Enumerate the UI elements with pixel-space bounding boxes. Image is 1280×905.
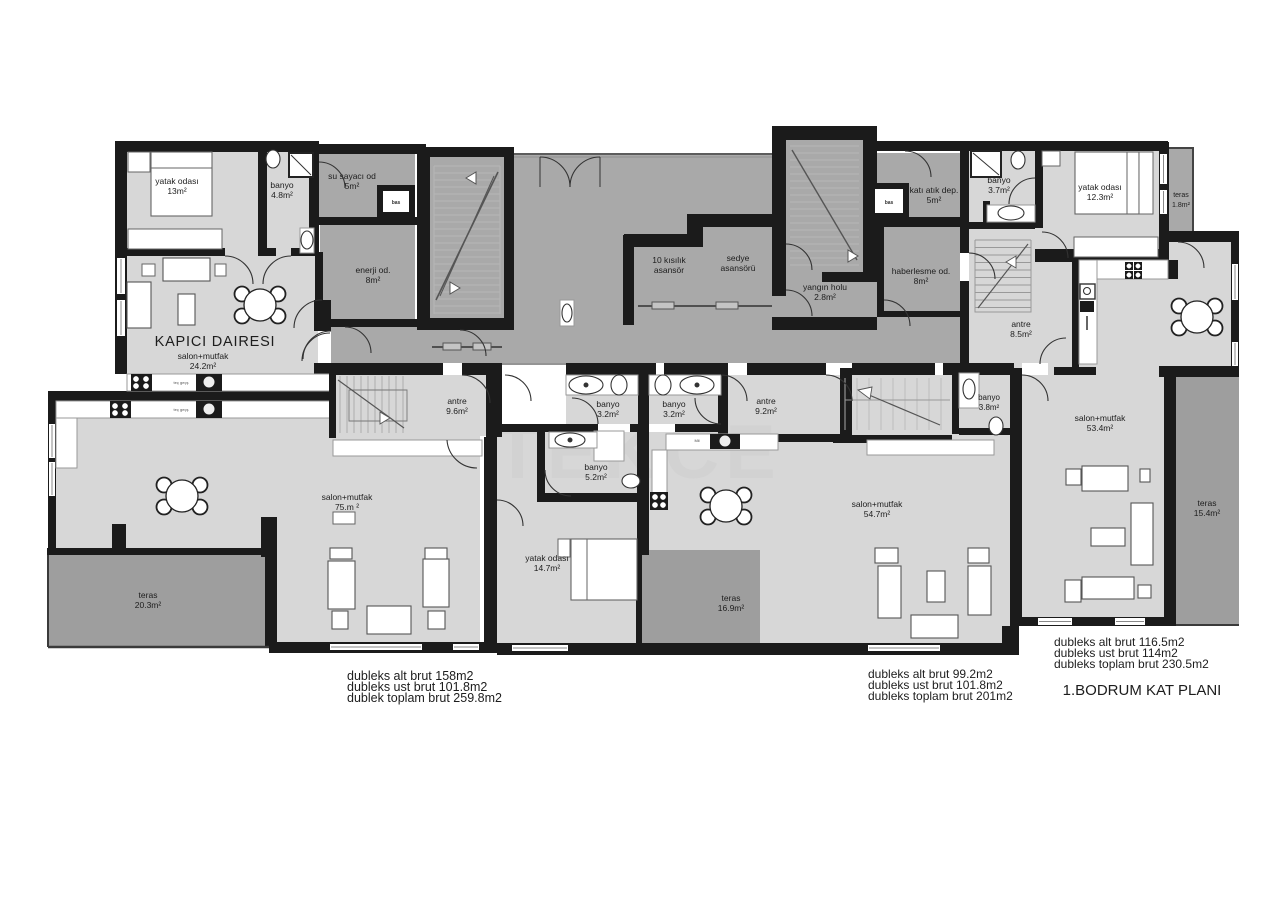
- svg-text:8.5m²: 8.5m²: [1010, 329, 1032, 339]
- svg-text:bas: bas: [885, 200, 894, 206]
- svg-text:banyo: banyo: [662, 399, 685, 409]
- svg-text:9.2m²: 9.2m²: [755, 406, 777, 416]
- svg-text:75.m ²: 75.m ²: [335, 502, 359, 512]
- svg-text:8m²: 8m²: [366, 275, 381, 285]
- svg-text:3.2m²: 3.2m²: [663, 409, 685, 419]
- svg-text:banyo: banyo: [596, 399, 619, 409]
- svg-text:KAPICI DAIRESI: KAPICI DAIRESI: [155, 334, 276, 350]
- svg-text:24.2m²: 24.2m²: [190, 361, 217, 371]
- svg-text:dubleks toplam brut 201m2: dubleks toplam brut 201m2: [868, 689, 1013, 703]
- svg-text:yangın holu: yangın holu: [803, 282, 847, 292]
- svg-text:yatak odası: yatak odası: [155, 176, 198, 186]
- svg-text:teç geçş: teç geçş: [174, 380, 189, 385]
- svg-text:8m²: 8m²: [914, 276, 929, 286]
- svg-text:15.4m²: 15.4m²: [1194, 508, 1221, 518]
- svg-text:su sayacı od: su sayacı od: [328, 171, 376, 181]
- svg-text:3.8m²: 3.8m²: [979, 403, 1000, 412]
- svg-text:salon+mutfak: salon+mutfak: [852, 499, 904, 509]
- svg-text:14.7m²: 14.7m²: [534, 563, 561, 573]
- svg-text:bas: bas: [392, 200, 401, 206]
- svg-text:2.8m²: 2.8m²: [814, 292, 836, 302]
- svg-text:16.9m²: 16.9m²: [718, 603, 745, 613]
- svg-text:teras: teras: [722, 593, 741, 603]
- svg-text:teras: teras: [139, 590, 158, 600]
- svg-text:antre: antre: [447, 396, 467, 406]
- svg-text:asansörü: asansörü: [721, 263, 756, 273]
- svg-text:teç geçş: teç geçş: [174, 407, 189, 412]
- svg-text:banyo: banyo: [270, 180, 293, 190]
- svg-text:salon+mutfak: salon+mutfak: [1075, 413, 1127, 423]
- svg-text:asansör: asansör: [654, 265, 684, 275]
- svg-text:sedye: sedye: [727, 253, 750, 263]
- svg-text:5m²: 5m²: [927, 195, 942, 205]
- svg-text:53.4m²: 53.4m²: [1087, 423, 1114, 433]
- svg-text:yatak odası: yatak odası: [525, 553, 568, 563]
- svg-text:antre: antre: [756, 396, 776, 406]
- svg-text:9.6m²: 9.6m²: [446, 406, 468, 416]
- svg-text:4.8m²: 4.8m²: [271, 190, 293, 200]
- svg-text:5m²: 5m²: [345, 181, 360, 191]
- svg-text:dubleks toplam brut 230.5m2: dubleks toplam brut 230.5m2: [1054, 657, 1209, 671]
- svg-text:54.7m²: 54.7m²: [864, 509, 891, 519]
- svg-text:banyo: banyo: [584, 462, 607, 472]
- svg-text:teras: teras: [1173, 192, 1189, 199]
- svg-text:Mil: Mil: [694, 438, 699, 443]
- svg-text:1.8m²: 1.8m²: [1172, 202, 1191, 209]
- svg-text:dublek toplam brut 259.8m2: dublek toplam brut 259.8m2: [347, 691, 502, 705]
- svg-text:teras: teras: [1198, 498, 1217, 508]
- svg-text:5.2m²: 5.2m²: [585, 472, 607, 482]
- svg-text:enerji od.: enerji od.: [356, 265, 391, 275]
- svg-text:20.3m²: 20.3m²: [135, 600, 162, 610]
- svg-text:antre: antre: [1011, 319, 1031, 329]
- svg-text:3.7m²: 3.7m²: [988, 185, 1010, 195]
- svg-text:katı atık dep.: katı atık dep.: [910, 185, 959, 195]
- svg-text:12.3m²: 12.3m²: [1087, 192, 1114, 202]
- svg-text:1.BODRUM KAT PLANI: 1.BODRUM KAT PLANI: [1063, 682, 1222, 699]
- svg-text:salon+mutfak: salon+mutfak: [178, 351, 230, 361]
- svg-text:haberlesme od.: haberlesme od.: [892, 266, 951, 276]
- svg-text:yatak odası: yatak odası: [1078, 182, 1121, 192]
- svg-text:banyo: banyo: [987, 175, 1010, 185]
- svg-text:salon+mutfak: salon+mutfak: [322, 492, 374, 502]
- svg-text:10 kısılık: 10 kısılık: [652, 255, 686, 265]
- svg-text:banyo: banyo: [978, 393, 1000, 402]
- svg-text:3.2m²: 3.2m²: [597, 409, 619, 419]
- svg-text:13m²: 13m²: [167, 186, 187, 196]
